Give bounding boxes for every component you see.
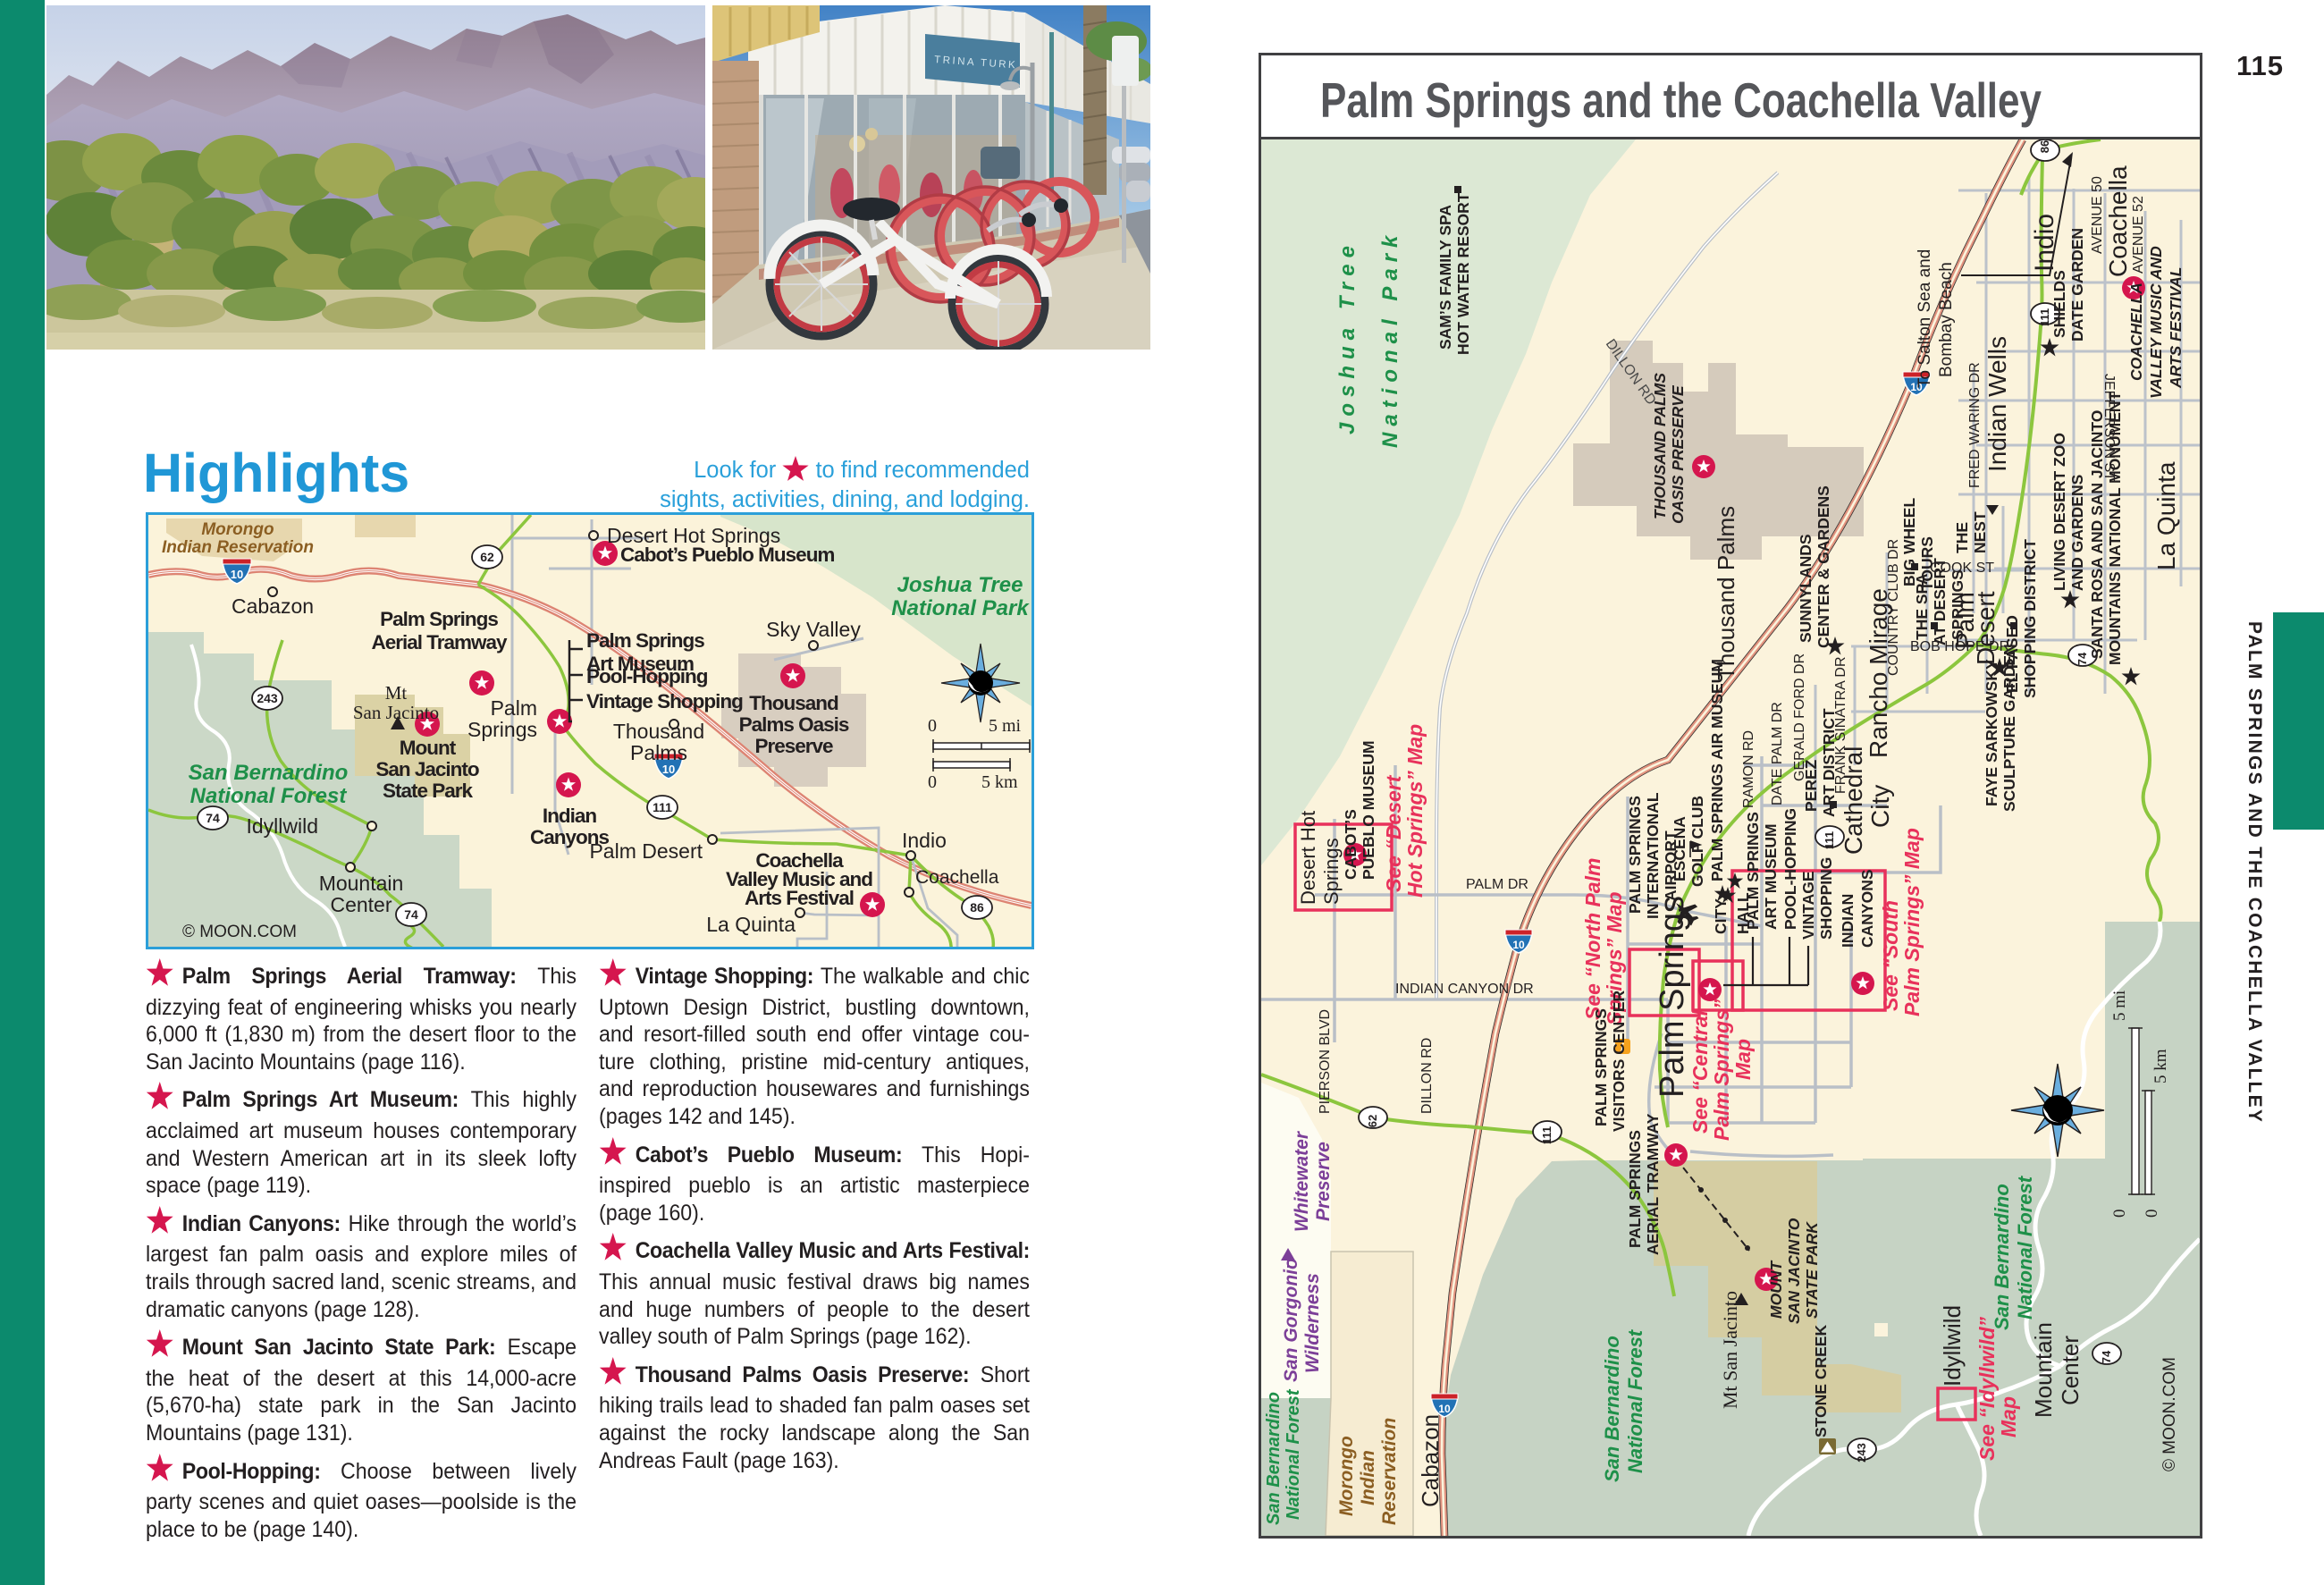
svg-text:CANYONS: CANYONS — [1858, 869, 1876, 948]
svg-text:San Bernardino: San Bernardino — [1991, 1184, 2013, 1330]
svg-text:74: 74 — [404, 907, 418, 922]
svg-text:Arts Festival: Arts Festival — [745, 887, 854, 909]
svg-text:INDIAN: INDIAN — [1839, 894, 1857, 948]
svg-text:VINTAGE: VINTAGE — [1799, 872, 1817, 940]
svg-text:CABOT’S: CABOT’S — [1342, 809, 1360, 880]
svg-text:111: 111 — [1540, 1126, 1554, 1144]
svg-text:PALM SPRINGS: PALM SPRINGS — [1626, 1130, 1644, 1248]
svg-text:STATE PARK: STATE PARK — [1803, 1221, 1821, 1319]
svg-text:LIVING DESERT ZOO: LIVING DESERT ZOO — [2050, 433, 2068, 591]
svg-text:ARTS FESTIVAL: ARTS FESTIVAL — [2167, 267, 2185, 389]
svg-text:OASIS PRESERVE: OASIS PRESERVE — [1669, 384, 1687, 524]
svg-text:Preserve: Preserve — [754, 735, 833, 757]
svg-text:See “South: See “South — [1879, 900, 1902, 1011]
svg-text:Hot Springs” Map: Hot Springs” Map — [1403, 724, 1427, 898]
svg-text:To Salton Sea and: To Salton Sea and — [1916, 249, 1934, 388]
svg-text:COACHELLA: COACHELLA — [2127, 282, 2145, 381]
svg-text:BIG WHEEL: BIG WHEEL — [1900, 498, 1918, 586]
svg-text:Morongo: Morongo — [1336, 1436, 1357, 1516]
svg-text:SUNNYLANDS: SUNNYLANDS — [1797, 534, 1815, 643]
svg-text:Mountain: Mountain — [2030, 1322, 2057, 1418]
svg-text:Idyllwild: Idyllwild — [246, 814, 318, 838]
svg-text:5 km: 5 km — [2151, 1049, 2170, 1083]
svg-text:BOB HOPE DR: BOB HOPE DR — [1910, 639, 2009, 654]
svg-text:Palm Springs”: Palm Springs” — [1710, 999, 1733, 1141]
svg-text:SAN JACINTO: SAN JACINTO — [1785, 1218, 1803, 1324]
svg-text:See “Idyllwild”: See “Idyllwild” — [1975, 1316, 1999, 1461]
svg-text:National Park: National Park — [1378, 230, 1402, 448]
svg-text:Palm Springs” Map: Palm Springs” Map — [1900, 828, 1924, 1016]
svg-text:DATE GARDEN: DATE GARDEN — [2068, 228, 2086, 341]
svg-text:Morongo: Morongo — [201, 520, 274, 539]
svg-text:111: 111 — [2038, 308, 2051, 326]
svg-text:Desert Hot: Desert Hot — [1297, 811, 1319, 905]
svg-text:Pool-Hopping: Pool-Hopping — [586, 665, 708, 687]
svg-text:Indio: Indio — [902, 829, 947, 852]
svg-text:SPRINGS: SPRINGS — [1949, 569, 1966, 640]
svg-text:DILLON RD: DILLON RD — [1419, 1038, 1435, 1114]
svg-text:THE SPA: THE SPA — [1913, 573, 1931, 640]
svg-text:Joshua Tree: Joshua Tree — [897, 573, 1023, 597]
svg-text:INDIAN CANYON DR: INDIAN CANYON DR — [1395, 982, 1534, 997]
svg-text:National Forest: National Forest — [190, 784, 348, 808]
svg-text:See “North Palm: See “North Palm — [1581, 858, 1604, 1021]
svg-text:La Quinta: La Quinta — [706, 913, 796, 936]
svg-text:0: 0 — [928, 772, 937, 792]
svg-text:Map: Map — [1731, 1039, 1755, 1080]
svg-text:62: 62 — [480, 550, 494, 564]
svg-text:0: 0 — [928, 716, 937, 736]
svg-text:Aerial Tramway: Aerial Tramway — [371, 631, 508, 653]
svg-text:Springs: Springs — [1320, 838, 1343, 905]
svg-text:Palm: Palm — [491, 696, 537, 720]
svg-text:AVENUE 50: AVENUE 50 — [2090, 176, 2105, 254]
svg-text:86: 86 — [970, 900, 984, 915]
svg-text:0: 0 — [2110, 1210, 2129, 1218]
svg-text:Indian: Indian — [1358, 1450, 1378, 1505]
svg-text:PALM SPRINGS AIR MUSEUM: PALM SPRINGS AIR MUSEUM — [1708, 659, 1726, 881]
svg-text:Whitewater: Whitewater — [1292, 1130, 1312, 1232]
svg-text:NEST: NEST — [1971, 511, 1989, 553]
svg-text:La Quinta: La Quinta — [2152, 461, 2180, 570]
svg-text:VISITORS CENTER: VISITORS CENTER — [1610, 990, 1628, 1132]
svg-text:Indian: Indian — [543, 805, 597, 827]
svg-text:Palm Springs: Palm Springs — [1654, 896, 1691, 1098]
svg-text:SHOPPING: SHOPPING — [1817, 857, 1835, 940]
svg-text:Springs: Springs — [467, 718, 537, 741]
svg-text:POOL-HOPPING: POOL-HOPPING — [1781, 808, 1799, 930]
svg-text:VALLEY MUSIC AND: VALLEY MUSIC AND — [2147, 246, 2165, 399]
svg-text:SHOPPING DISTRICT: SHOPPING DISTRICT — [2021, 539, 2039, 698]
svg-text:National Forest: National Forest — [1284, 1388, 1303, 1520]
svg-text:AVENUE 52: AVENUE 52 — [2131, 196, 2146, 274]
svg-text:Palm Springs: Palm Springs — [586, 629, 704, 652]
svg-text:Center: Center — [2057, 1336, 2084, 1405]
svg-text:PALM SPRINGS: PALM SPRINGS — [1744, 812, 1762, 930]
svg-text:National Park: National Park — [891, 596, 1030, 620]
svg-text:Idyllwild: Idyllwild — [1939, 1305, 1966, 1387]
svg-text:Map: Map — [1997, 1396, 2020, 1437]
svg-text:HOT WATER RESORT: HOT WATER RESORT — [1454, 192, 1472, 355]
svg-text:San Gorgonio: San Gorgonio — [1281, 1258, 1301, 1382]
svg-text:State Park: State Park — [383, 780, 474, 802]
svg-text:86: 86 — [2038, 140, 2051, 153]
svg-text:243: 243 — [1855, 1443, 1868, 1463]
svg-text:San Bernardino: San Bernardino — [1264, 1392, 1284, 1525]
svg-text:0: 0 — [2143, 1210, 2161, 1218]
svg-text:COOK ST: COOK ST — [1930, 561, 1994, 576]
svg-text:74: 74 — [206, 811, 220, 825]
svg-text:Indian Wells: Indian Wells — [1983, 336, 2011, 472]
svg-text:AERIAL TRAMWAY: AERIAL TRAMWAY — [1644, 1113, 1662, 1255]
svg-text:111: 111 — [1823, 831, 1836, 849]
svg-text:Indio: Indio — [2030, 214, 2059, 272]
svg-text:Thousand: Thousand — [613, 720, 704, 743]
svg-text:INTERNATIONAL: INTERNATIONAL — [1644, 792, 1662, 919]
svg-text:Coachella: Coachella — [2104, 165, 2132, 277]
svg-text:© MOON.COM: © MOON.COM — [2160, 1357, 2179, 1471]
svg-text:FAYE SARKOWSKY: FAYE SARKOWSKY — [1983, 659, 2000, 806]
svg-text:Palm Springs: Palm Springs — [380, 608, 498, 630]
svg-text:243: 243 — [257, 691, 278, 705]
svg-text:RAMON RD: RAMON RD — [1741, 730, 1756, 808]
svg-text:CENTER & GARDENS: CENTER & GARDENS — [1815, 485, 1832, 648]
svg-text:Thousand: Thousand — [749, 692, 838, 714]
svg-text:ESCENA: ESCENA — [1671, 816, 1688, 881]
svg-text:10: 10 — [662, 763, 675, 776]
svg-text:5 mi: 5 mi — [2110, 991, 2129, 1021]
svg-text:Canyons: Canyons — [530, 826, 610, 848]
svg-text:PALM SPRINGS: PALM SPRINGS — [1592, 1008, 1610, 1126]
svg-text:MOUNT: MOUNT — [1767, 1260, 1785, 1319]
svg-text:10: 10 — [1512, 939, 1525, 951]
svg-text:PUEBLO MUSEUM: PUEBLO MUSEUM — [1360, 740, 1377, 880]
svg-text:PIERSON BLVD: PIERSON BLVD — [1318, 1009, 1333, 1114]
svg-text:Bombay Beach: Bombay Beach — [1937, 262, 1956, 377]
svg-text:Sky Valley: Sky Valley — [766, 618, 861, 641]
svg-text:San Bernardino: San Bernardino — [189, 761, 349, 785]
svg-text:SHIELDS: SHIELDS — [2050, 270, 2068, 338]
svg-text:Mt: Mt — [385, 682, 408, 704]
svg-text:COUNTRY CLUB DR: COUNTRY CLUB DR — [1886, 539, 1901, 676]
svg-text:10: 10 — [231, 568, 243, 581]
svg-text:FRED WARING DR: FRED WARING DR — [1967, 362, 1983, 488]
svg-text:FRANK SINATRA DR: FRANK SINATRA DR — [1833, 657, 1848, 795]
svg-text:Reservation: Reservation — [1379, 1418, 1400, 1525]
svg-text:ART MUSEUM: ART MUSEUM — [1762, 823, 1780, 930]
svg-text:Wilderness: Wilderness — [1302, 1273, 1323, 1373]
svg-text:Cabazon: Cabazon — [1417, 1414, 1444, 1507]
svg-text:5 km: 5 km — [981, 772, 1018, 792]
svg-text:Cabot’s Pueblo Museum: Cabot’s Pueblo Museum — [620, 544, 834, 566]
svg-text:See “Central: See “Central — [1688, 1009, 1712, 1134]
svg-text:Center: Center — [330, 893, 392, 916]
svg-text:© MOON.COM: © MOON.COM — [182, 923, 297, 941]
svg-text:Preserve: Preserve — [1313, 1142, 1334, 1221]
svg-text:Mountain: Mountain — [319, 872, 404, 895]
svg-text:Cabazon: Cabazon — [232, 594, 314, 618]
svg-text:City: City — [1866, 785, 1894, 828]
svg-text:Coachella: Coachella — [915, 867, 999, 888]
svg-text:Thousand Palms: Thousand Palms — [1713, 506, 1739, 680]
svg-text:10: 10 — [1438, 1403, 1451, 1415]
svg-text:Palms Oasis: Palms Oasis — [739, 713, 849, 736]
svg-text:74: 74 — [2076, 652, 2089, 665]
svg-text:5 mi: 5 mi — [989, 716, 1022, 736]
svg-text:PALM SPRINGS: PALM SPRINGS — [1626, 796, 1644, 914]
svg-text:San Jacinto: San Jacinto — [375, 758, 479, 780]
svg-text:Palms: Palms — [630, 741, 687, 764]
svg-text:74: 74 — [2100, 1350, 2113, 1363]
svg-text:DATE PALM DR: DATE PALM DR — [1770, 702, 1785, 805]
svg-text:62: 62 — [1366, 1115, 1379, 1127]
svg-text:CITY: CITY — [1712, 898, 1730, 934]
svg-text:111: 111 — [653, 800, 672, 814]
svg-text:National Forest: National Forest — [1624, 1328, 1646, 1473]
svg-text:Mt San Jacinto: Mt San Jacinto — [1719, 1291, 1741, 1409]
svg-text:Vintage Shopping: Vintage Shopping — [586, 690, 743, 712]
svg-text:Joshua Tree: Joshua Tree — [1335, 240, 1360, 434]
svg-text:JEFFERSON ST: JEFFERSON ST — [2101, 374, 2117, 481]
svg-text:Indian Reservation: Indian Reservation — [162, 538, 314, 557]
svg-text:SAM’S FAMILY SPA: SAM’S FAMILY SPA — [1436, 205, 1454, 350]
svg-text:See “Desert: See “Desert — [1382, 774, 1405, 892]
svg-text:GERALD FORD DR: GERALD FORD DR — [1792, 653, 1807, 781]
svg-text:National Forest: National Forest — [2014, 1175, 2036, 1319]
svg-text:PALM DR: PALM DR — [1466, 877, 1528, 892]
svg-text:THE: THE — [1953, 522, 1971, 553]
svg-text:AND GARDENS: AND GARDENS — [2068, 475, 2086, 591]
svg-text:STONE CREEK: STONE CREEK — [1812, 1325, 1830, 1437]
svg-text:San Bernardino: San Bernardino — [1601, 1336, 1623, 1482]
svg-text:Mount: Mount — [400, 737, 457, 759]
